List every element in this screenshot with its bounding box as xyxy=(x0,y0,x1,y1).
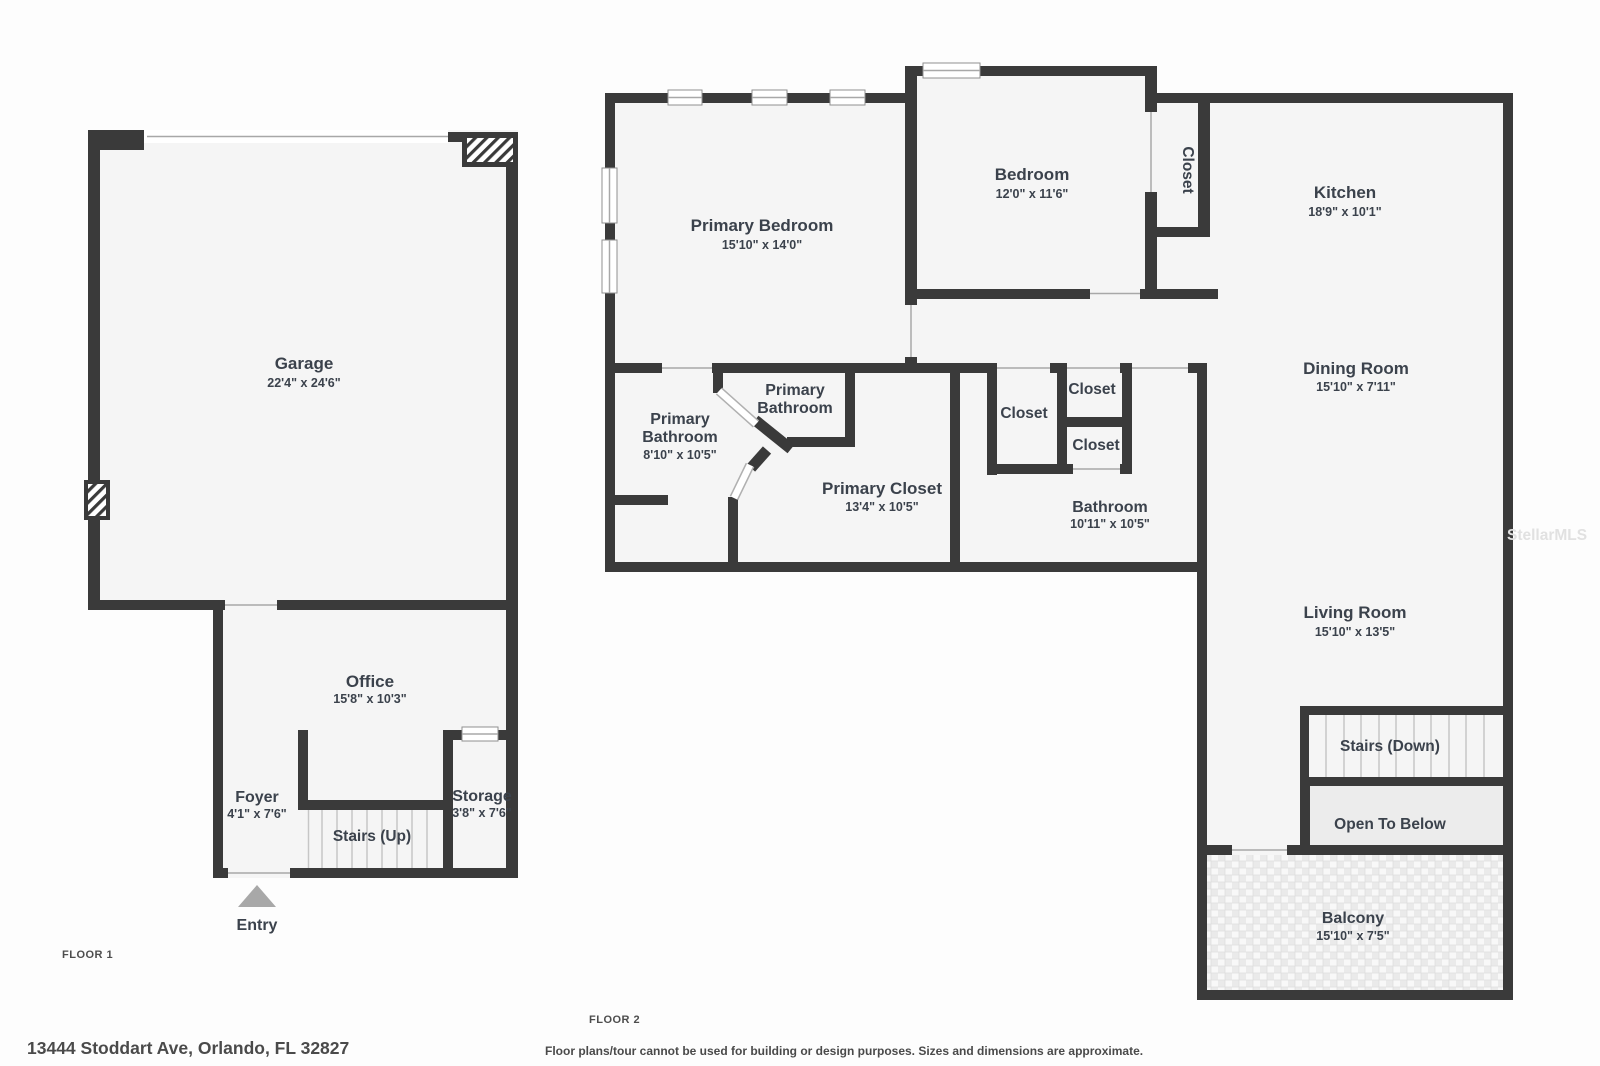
kitchen-label: Kitchen xyxy=(1314,183,1376,202)
foyer-dims: 4'1" x 7'6" xyxy=(227,807,287,821)
primary-bathroom-label-line2: Bathroom xyxy=(642,429,718,446)
garage-dims: 22'4" x 24'6" xyxy=(267,376,340,390)
living-room-dims: 15'10" x 13'5" xyxy=(1315,625,1395,639)
primary-bedroom-dims: 15'10" x 14'0" xyxy=(722,238,802,252)
living-room-label: Living Room xyxy=(1304,603,1407,622)
primary-closet-dims: 13'4" x 10'5" xyxy=(845,500,918,514)
primary-bathroom-small-label-line2: Bathroom xyxy=(757,400,833,417)
open-to-below-label: Open To Below xyxy=(1334,816,1447,833)
entry-arrow-icon xyxy=(238,885,276,907)
floor-plan-image: Garage 22'4" x 24'6" Office 15'8" x 10'3… xyxy=(0,0,1600,1066)
floor2-plan: Primary Bedroom 15'10" x 14'0" Bedroom 1… xyxy=(589,63,1513,1026)
bedroom-label: Bedroom xyxy=(995,165,1070,184)
disclaimer-text: Floor plans/tour cannot be used for buil… xyxy=(545,1044,1143,1058)
foyer-label: Foyer xyxy=(235,789,279,806)
floor1-title: FLOOR 1 xyxy=(62,949,113,961)
primary-bathroom-label-line1: Primary xyxy=(650,411,710,428)
footer: 13444 Stoddart Ave, Orlando, FL 32827 Fl… xyxy=(27,1038,1143,1058)
floor1-plan: Garage 22'4" x 24'6" Office 15'8" x 10'3… xyxy=(62,130,518,961)
bathroom-dims: 10'11" x 10'5" xyxy=(1070,517,1150,531)
stairs-up-label: Stairs (Up) xyxy=(333,828,411,845)
storage-dims: 3'8" x 7'6" xyxy=(452,806,512,820)
bathroom-label: Bathroom xyxy=(1072,499,1148,516)
upper-closet-label: Closet xyxy=(1068,381,1115,398)
property-address: 13444 Stoddart Ave, Orlando, FL 32827 xyxy=(27,1038,349,1058)
entry-label: Entry xyxy=(237,917,278,934)
balcony-dims: 15'10" x 7'5" xyxy=(1316,929,1389,943)
primary-bedroom-label: Primary Bedroom xyxy=(691,216,834,235)
primary-bathroom-dims: 8'10" x 10'5" xyxy=(643,448,716,462)
stairs-down-label: Stairs (Down) xyxy=(1340,738,1440,755)
bedroom-dims: 12'0" x 11'6" xyxy=(996,187,1069,201)
storage-label: Storage xyxy=(452,788,512,805)
floor-plan-page: Garage 22'4" x 24'6" Office 15'8" x 10'3… xyxy=(0,0,1600,1066)
office-label: Office xyxy=(346,672,394,691)
stellar-mls-watermark: StellarMLS xyxy=(1507,527,1587,544)
hall-closet-label: Closet xyxy=(1000,405,1047,422)
bedroom-closet-label: Closet xyxy=(1179,146,1196,193)
kitchen-dims: 18'9" x 10'1" xyxy=(1308,205,1381,219)
dining-room-dims: 15'10" x 7'11" xyxy=(1316,380,1396,394)
primary-bathroom-small-label-line1: Primary xyxy=(765,382,825,399)
primary-closet-label: Primary Closet xyxy=(822,479,942,498)
floor2-title: FLOOR 2 xyxy=(589,1014,640,1026)
balcony-label: Balcony xyxy=(1322,910,1384,927)
dining-room-label: Dining Room xyxy=(1303,359,1409,378)
lower-closet-label: Closet xyxy=(1072,437,1119,454)
garage-label: Garage xyxy=(275,354,334,373)
office-dims: 15'8" x 10'3" xyxy=(333,692,406,706)
